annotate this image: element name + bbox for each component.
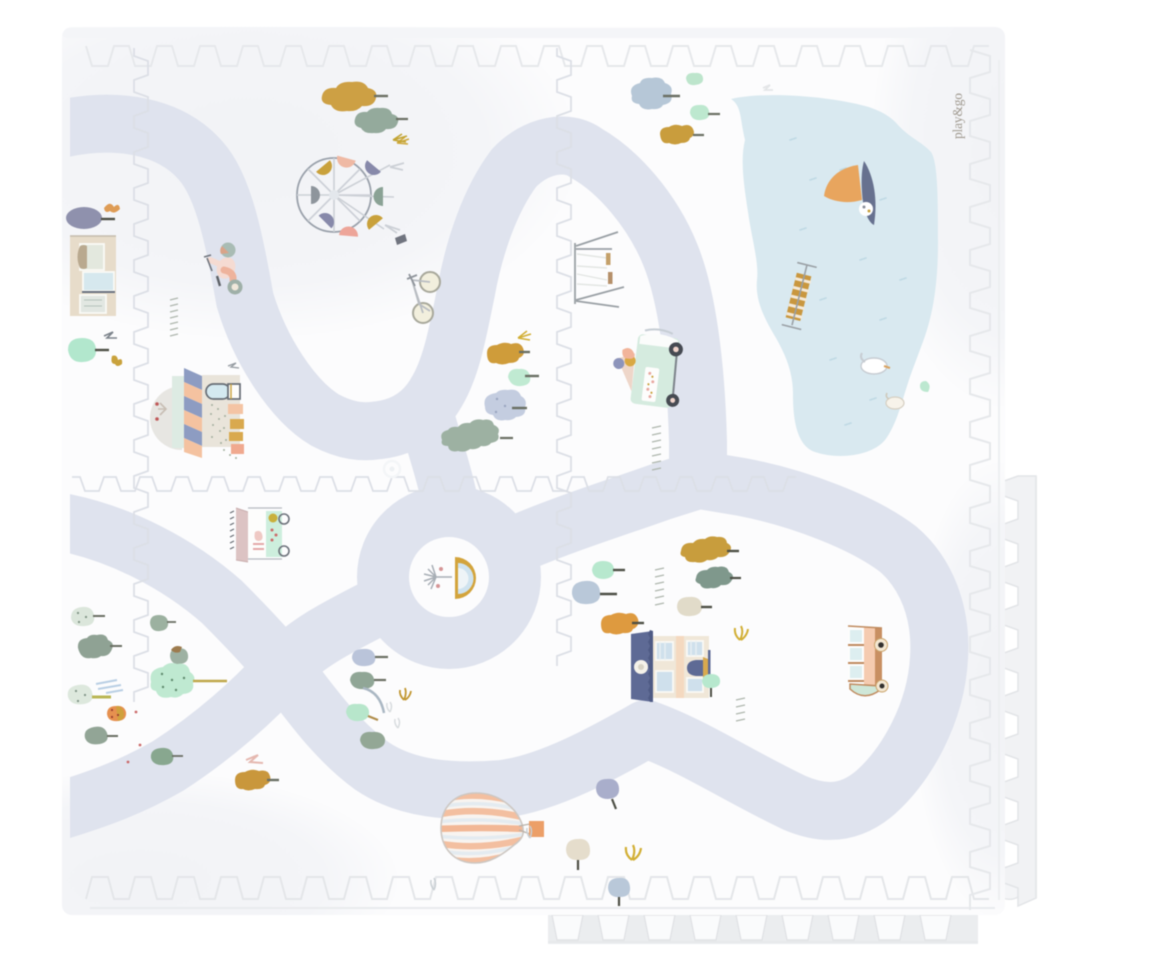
svg-text:play&go: play&go bbox=[950, 93, 965, 139]
